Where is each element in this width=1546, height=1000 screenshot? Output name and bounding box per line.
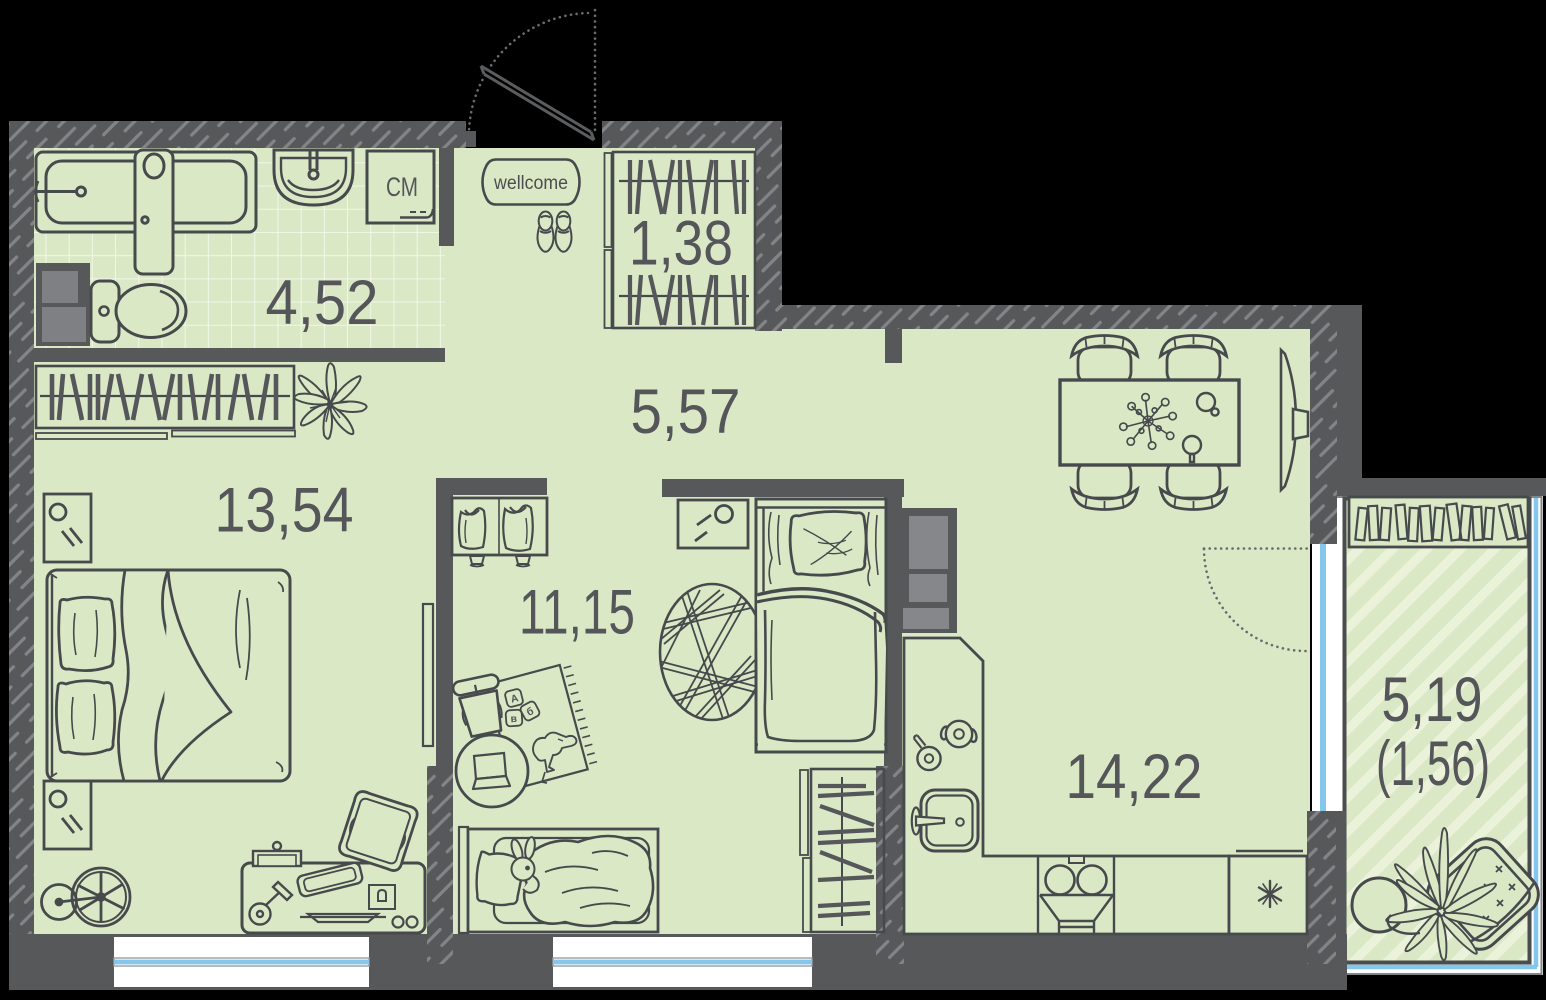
svg-text:wellcome: wellcome: [493, 173, 568, 194]
svg-text:14,22: 14,22: [1066, 742, 1203, 812]
svg-text:1,38: 1,38: [629, 209, 733, 279]
svg-text:5,57: 5,57: [631, 377, 741, 447]
svg-text:13,54: 13,54: [215, 476, 354, 546]
svg-text:4,52: 4,52: [266, 268, 379, 338]
svg-text:11,15: 11,15: [519, 578, 635, 648]
svg-text:(1,56): (1,56): [1376, 729, 1490, 799]
svg-text:5,19: 5,19: [1382, 665, 1483, 735]
svg-text:СМ: СМ: [386, 172, 418, 202]
